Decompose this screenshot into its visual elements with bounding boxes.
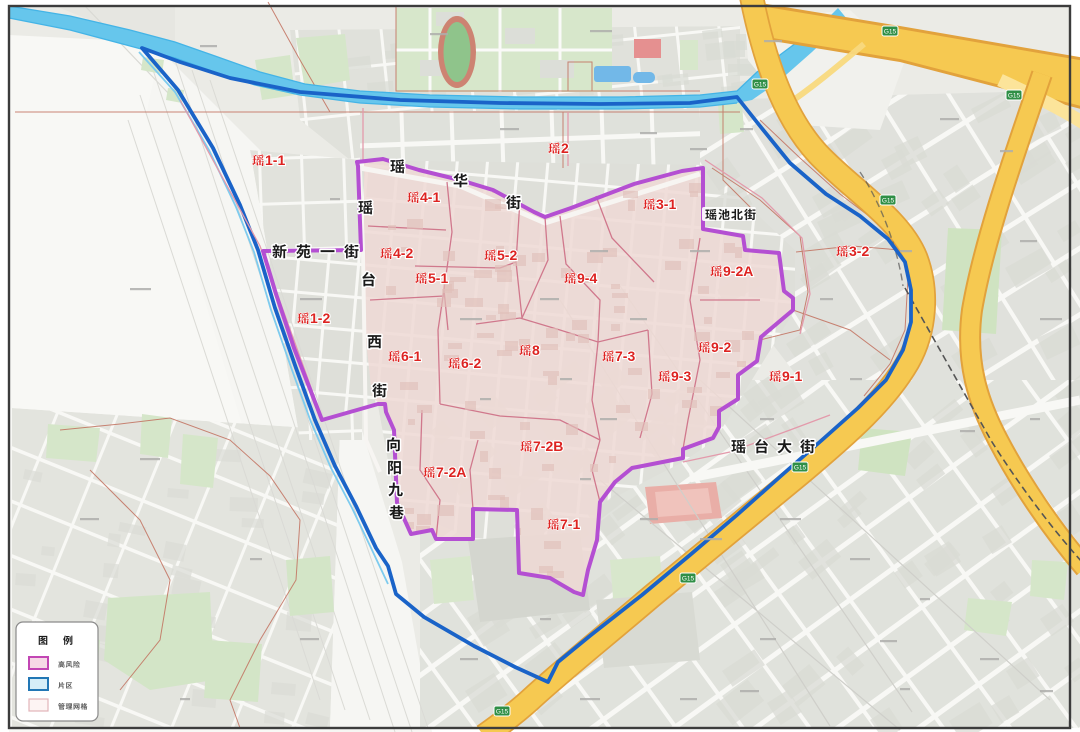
svg-text:5-2: 5-2	[497, 247, 517, 263]
svg-text:G15: G15	[754, 82, 767, 89]
svg-text:7-2A: 7-2A	[436, 464, 466, 480]
svg-text:9-2A: 9-2A	[723, 263, 753, 279]
svg-text:3-2: 3-2	[849, 243, 869, 259]
svg-text:9-4: 9-4	[577, 270, 597, 286]
svg-text:6-2: 6-2	[461, 355, 481, 371]
svg-text:G15: G15	[1008, 93, 1021, 100]
svg-text:4-1: 4-1	[420, 189, 440, 205]
svg-text:8: 8	[532, 342, 540, 358]
svg-text:4-2: 4-2	[393, 245, 413, 261]
svg-text:7-1: 7-1	[560, 516, 580, 532]
svg-text:1-2: 1-2	[310, 310, 330, 326]
svg-text:6-1: 6-1	[401, 348, 421, 364]
svg-text:G15: G15	[882, 198, 895, 205]
svg-text:5-1: 5-1	[428, 270, 448, 286]
svg-text:G15: G15	[884, 29, 897, 36]
svg-text:7-3: 7-3	[615, 348, 635, 364]
svg-text:7-2B: 7-2B	[533, 438, 563, 454]
svg-text:3-1: 3-1	[656, 196, 676, 212]
svg-text:2: 2	[561, 140, 569, 156]
svg-text:9-3: 9-3	[671, 368, 691, 384]
svg-text:G15: G15	[794, 465, 807, 472]
svg-text:9-1: 9-1	[782, 368, 802, 384]
svg-text:9-2: 9-2	[711, 339, 731, 355]
svg-text:1-1: 1-1	[265, 152, 285, 168]
svg-text:G15: G15	[496, 709, 509, 716]
svg-text:G15: G15	[682, 576, 695, 583]
